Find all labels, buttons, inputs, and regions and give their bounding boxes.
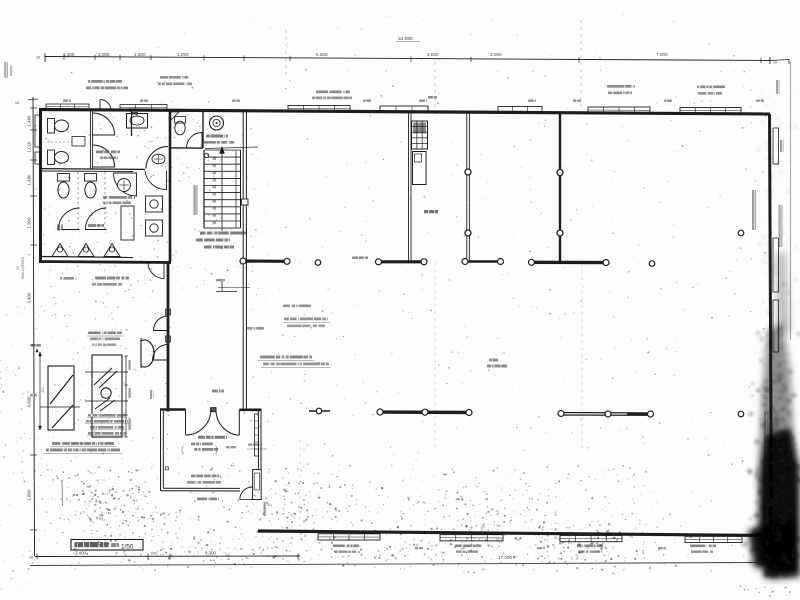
svg-text:3.400: 3.400 [27, 292, 32, 304]
svg-text:10: 10 [773, 61, 777, 65]
svg-text:1.305: 1.305 [63, 52, 75, 57]
svg-text:2.030: 2.030 [427, 52, 439, 57]
svg-text:4.600: 4.600 [27, 396, 32, 408]
svg-text:5.500: 5.500 [316, 52, 328, 57]
svg-text:1/50: 1/50 [121, 544, 134, 551]
svg-text:1.000: 1.000 [98, 52, 110, 57]
svg-text:3.400: 3.400 [75, 551, 87, 556]
svg-text:450: 450 [41, 387, 45, 393]
svg-text:34.060: 34.060 [398, 36, 413, 42]
svg-text:10: 10 [36, 56, 40, 60]
svg-text:17.090: 17.090 [498, 555, 512, 560]
svg-text:1.489: 1.489 [27, 115, 32, 127]
svg-text:1.900: 1.900 [27, 217, 32, 229]
svg-text:(: ( [181, 444, 184, 454]
svg-text:1.800: 1.800 [27, 489, 32, 501]
svg-text:100: 100 [150, 551, 157, 556]
svg-text:3.060: 3.060 [490, 52, 502, 57]
svg-text:1.480: 1.480 [27, 174, 32, 186]
svg-text:9M4-C(999G): 9M4-C(999G) [21, 257, 25, 279]
svg-text:7.000: 7.000 [656, 52, 668, 57]
svg-text:10: 10 [29, 556, 33, 560]
svg-text:10: 10 [15, 101, 19, 105]
svg-text:1.500: 1.500 [134, 52, 146, 57]
svg-text:1.010: 1.010 [27, 141, 32, 153]
svg-text:1.250: 1.250 [177, 52, 189, 57]
svg-text:SS: SS [16, 265, 20, 270]
